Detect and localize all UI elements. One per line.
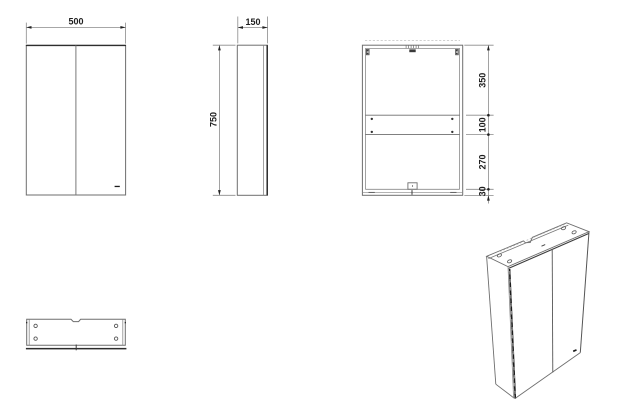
svg-text:150: 150 xyxy=(245,17,260,27)
svg-text:500: 500 xyxy=(68,17,83,27)
svg-text:30: 30 xyxy=(478,186,488,196)
svg-text:100: 100 xyxy=(478,117,488,132)
svg-text:750: 750 xyxy=(209,112,219,127)
svg-text:350: 350 xyxy=(478,73,488,88)
svg-text:270: 270 xyxy=(478,154,488,169)
